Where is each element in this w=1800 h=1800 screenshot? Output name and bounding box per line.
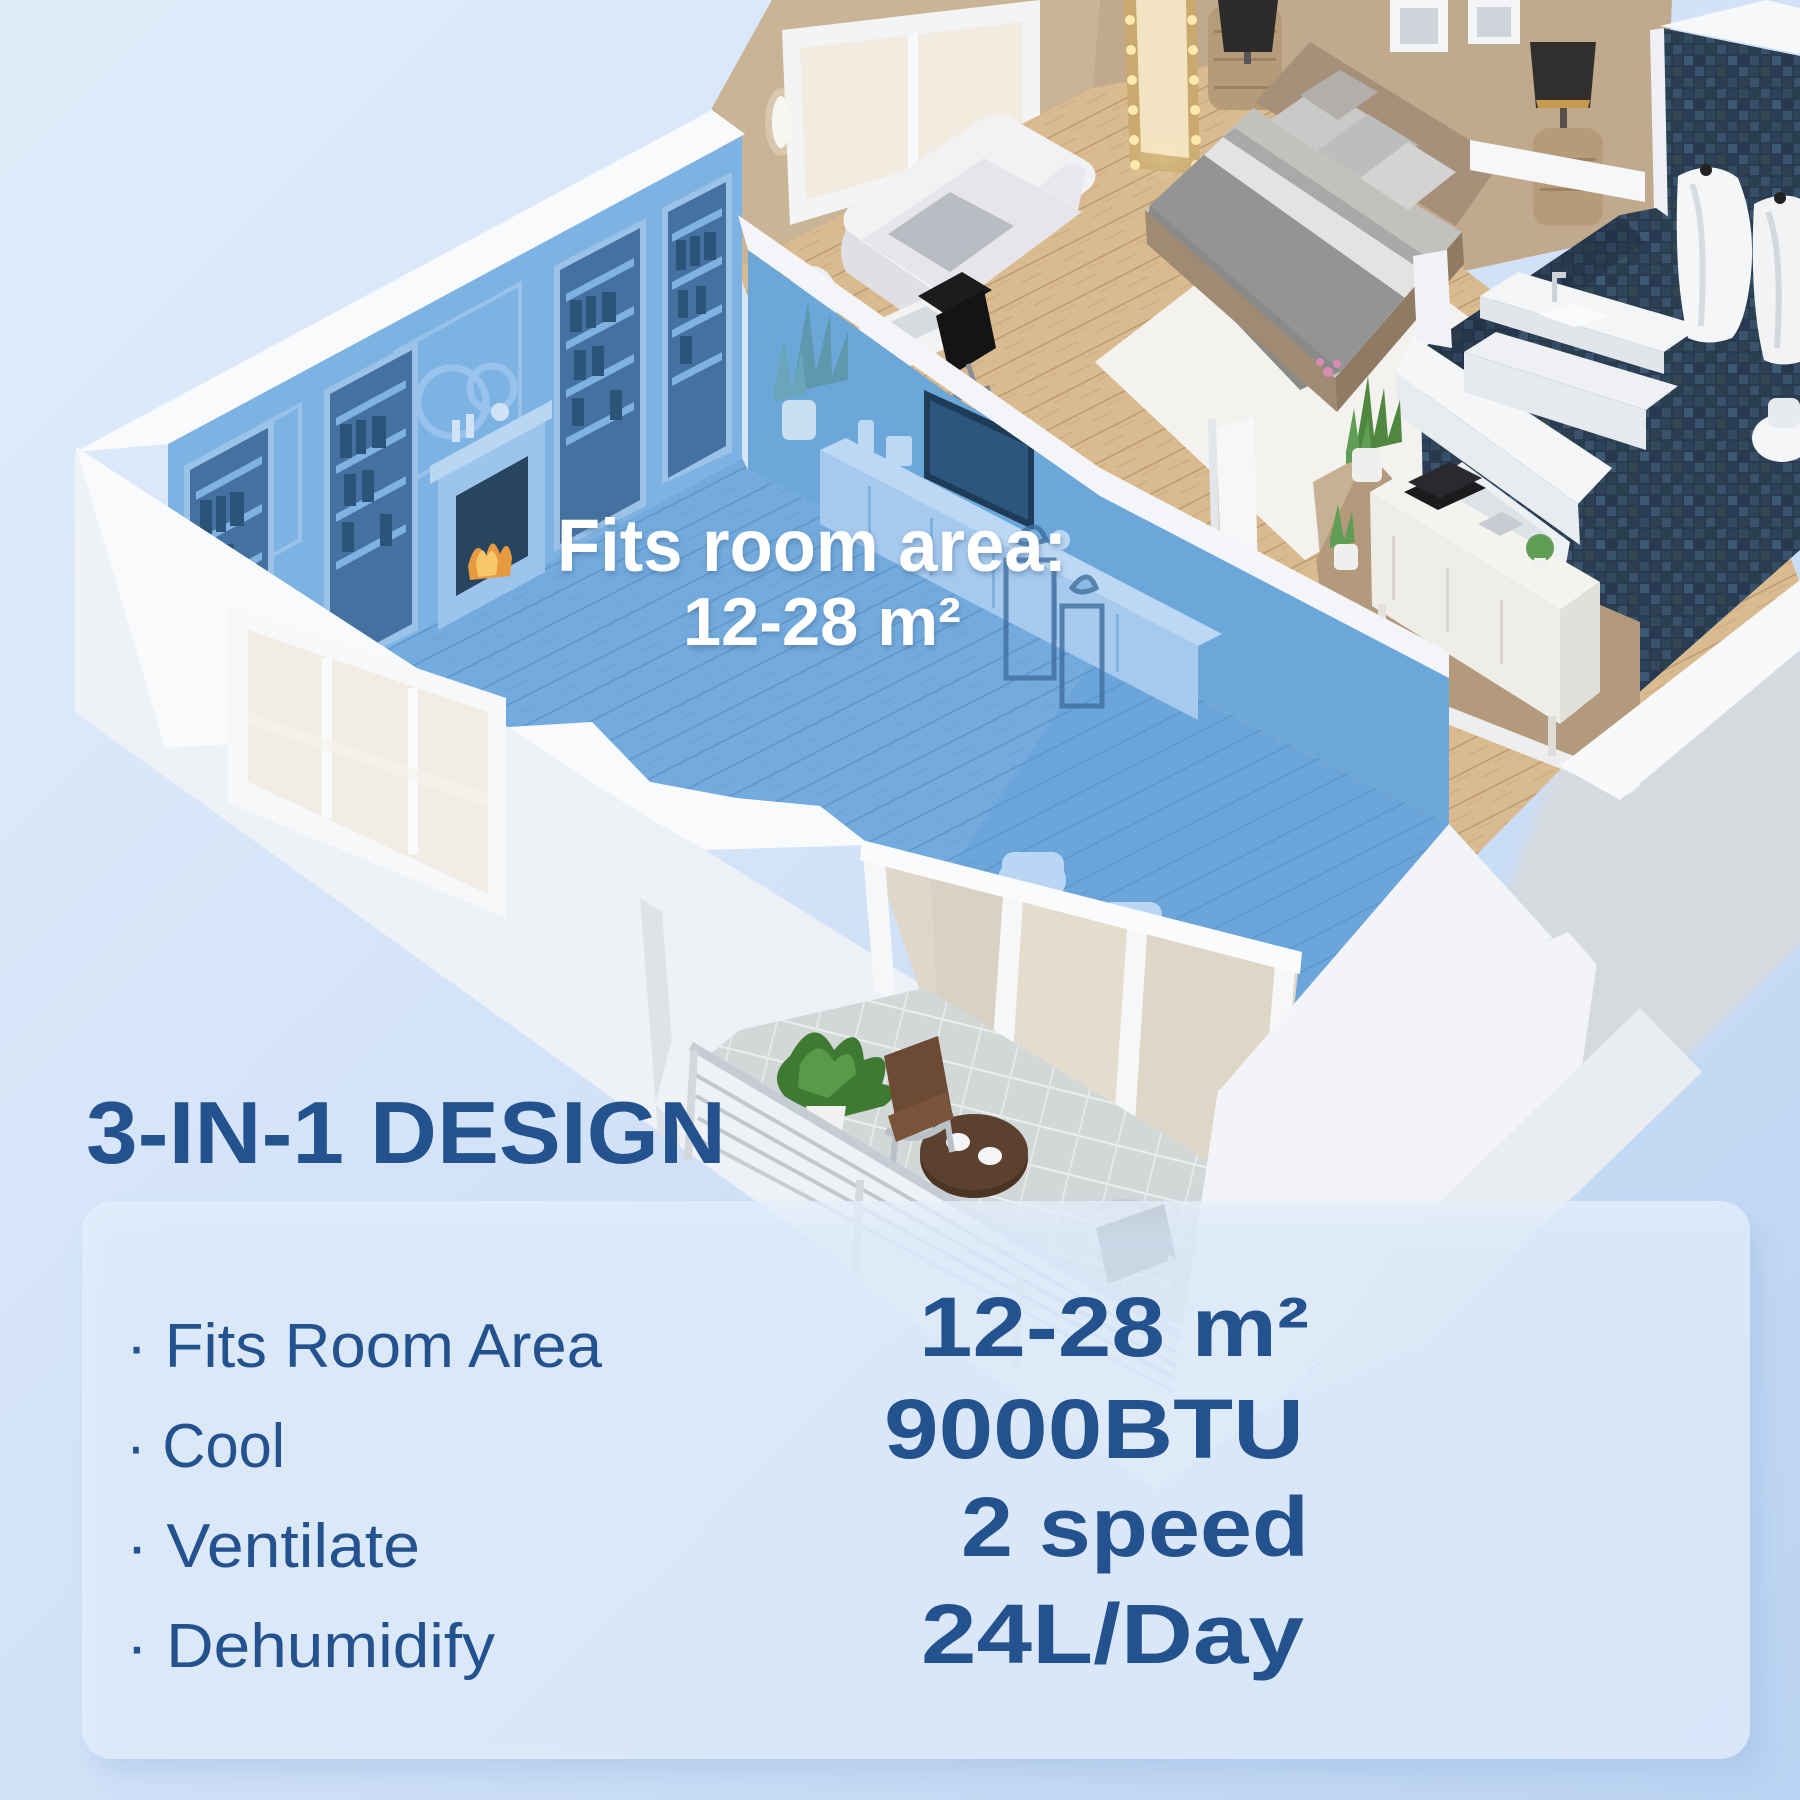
svg-text:· Dehumidify: · Dehumidify [126,1612,495,1681]
svg-text:· Fits Room Area: · Fits Room Area [126,1312,603,1381]
svg-text:· Ventilate: · Ventilate [126,1512,420,1581]
svg-text:12-28 m²: 12-28 m² [919,1280,1309,1374]
svg-text:3-IN-1 DESIGN: 3-IN-1 DESIGN [86,1083,726,1182]
svg-text:Fits room area:: Fits room area: [557,504,1067,587]
svg-text:2 speed: 2 speed [961,1480,1309,1574]
svg-text:· Cool: · Cool [126,1412,285,1481]
svg-text:24L/Day: 24L/Day [921,1587,1304,1681]
svg-text:9000BTU: 9000BTU [884,1382,1304,1476]
svg-text:12-28 m²: 12-28 m² [683,584,961,660]
